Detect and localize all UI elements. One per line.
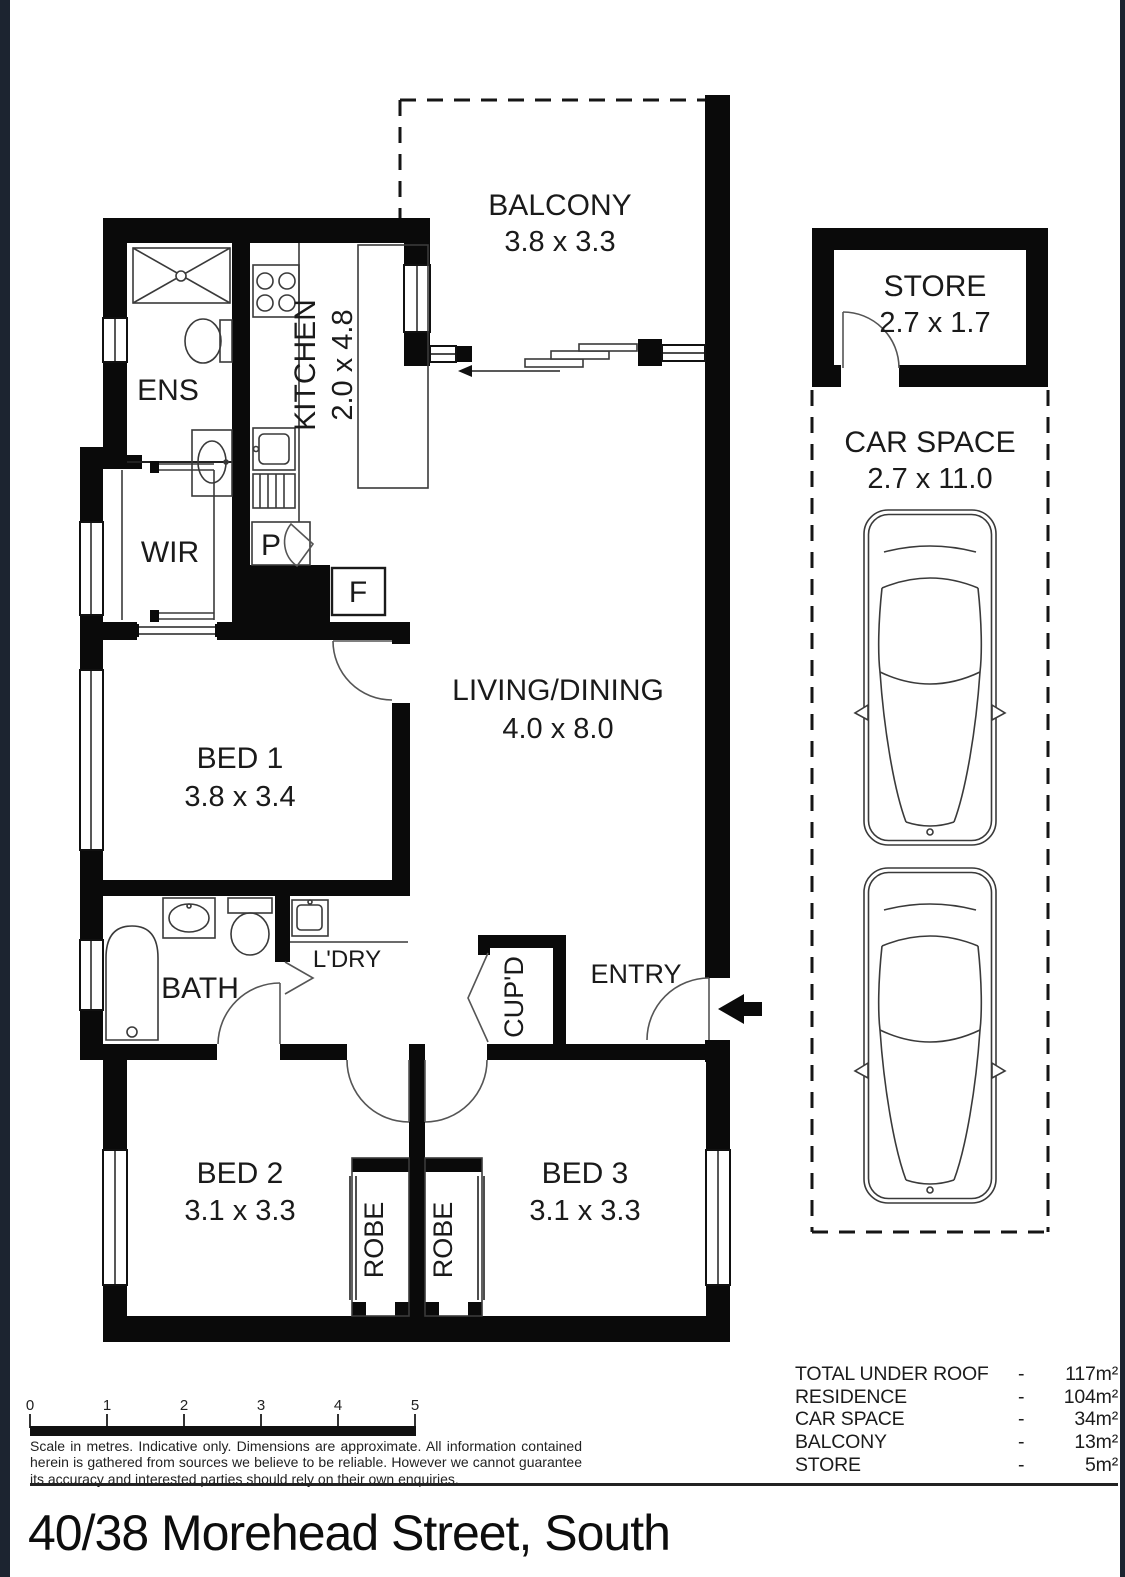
room-bed1: BED 1 3.8 x 3.4 (133, 624, 392, 813)
kitchen-drawers-fixture (253, 474, 295, 508)
door-arc-bed2 (347, 1060, 409, 1122)
wall (103, 1316, 730, 1342)
room-dims-store: 2.7 x 1.7 (879, 307, 990, 339)
wall (80, 1044, 217, 1060)
door-arc-pantry (285, 524, 313, 566)
room-label-bath: BATH (161, 972, 239, 1005)
car-top-view (855, 510, 1005, 845)
room-label-robe-left: ROBE (359, 1202, 389, 1279)
window (80, 940, 103, 1010)
room-balcony: BALCONY 3.8 x 3.3 (400, 100, 705, 377)
wall (80, 896, 103, 940)
area-label: RESIDENCE (795, 1386, 1018, 1409)
disclaimer-text: Scale in metres. Indicative only. Dimens… (30, 1438, 582, 1487)
scale-bar-rule (30, 1426, 416, 1436)
area-separator: - (1018, 1431, 1052, 1454)
area-separator: - (1018, 1454, 1052, 1477)
area-value: 5m² (1052, 1454, 1118, 1477)
scale-tick-label: 2 (180, 1397, 188, 1414)
scale-tick-label: 1 (103, 1397, 111, 1414)
wall (395, 1302, 409, 1316)
room-label-balcony: BALCONY (488, 189, 631, 222)
wall (456, 346, 472, 362)
sliding-door (458, 344, 637, 377)
page-title: 40/38 Morehead Street, South (28, 1504, 1088, 1562)
wall (404, 243, 430, 265)
scale-tick-label: 4 (334, 1397, 342, 1414)
entry: ENTRY (590, 959, 762, 1040)
area-row: TOTAL UNDER ROOF - 117m² (795, 1363, 1118, 1386)
wall (80, 880, 410, 896)
room-dims-living: 4.0 x 8.0 (502, 713, 613, 745)
floor-plan: BALCONY 3.8 x 3.3 (0, 0, 1125, 1577)
area-label: STORE (795, 1454, 1018, 1477)
room-label-ens: ENS (137, 374, 199, 407)
area-row: BALCONY - 13m² (795, 1431, 1118, 1454)
room-label-kitchen: KITCHEN (289, 299, 322, 431)
car-top-view (855, 868, 1005, 1203)
area-separator: - (1018, 1363, 1052, 1386)
laundry-bifold-door (285, 962, 313, 994)
room-dims-bed2: 3.1 x 3.3 (184, 1195, 295, 1227)
room-bath: BATH (106, 898, 280, 1044)
car-space: CAR SPACE 2.7 x 11.0 (812, 390, 1048, 1232)
area-label: CAR SPACE (795, 1408, 1018, 1431)
shower-fixture (133, 248, 230, 303)
laundry-sink-fixture (292, 900, 328, 936)
window (103, 1150, 127, 1285)
wall (553, 935, 566, 1060)
room-ens: ENS (133, 248, 232, 496)
slide-arrow-icon (458, 365, 472, 377)
area-table: TOTAL UNDER ROOF - 117m² RESIDENCE - 104… (795, 1363, 1118, 1477)
fridge: F (332, 568, 385, 615)
room-dims-bed3: 3.1 x 3.3 (529, 1195, 640, 1227)
room-kitchen: KITCHEN 2.0 x 4.8 (253, 243, 428, 522)
robe-left: ROBE (350, 1158, 409, 1316)
toilet-fixture (185, 319, 232, 363)
robe-right: ROBE (425, 1158, 484, 1316)
wall (280, 1044, 347, 1060)
wall (478, 935, 566, 948)
window (706, 1150, 730, 1285)
wall (103, 1285, 127, 1316)
area-separator: - (1018, 1408, 1052, 1431)
wall (232, 243, 250, 625)
window (430, 346, 456, 362)
room-label-bed3: BED 3 (542, 1157, 629, 1190)
wall (250, 565, 330, 625)
area-value: 104m² (1052, 1386, 1118, 1409)
wall (425, 1302, 439, 1316)
area-row: STORE - 5m² (795, 1454, 1118, 1477)
window (80, 670, 103, 850)
wall (103, 362, 127, 457)
wall (638, 339, 662, 366)
wall (352, 1302, 366, 1316)
kitchen-sink-fixture (253, 428, 295, 470)
entry-arrow-icon (718, 994, 762, 1024)
wall (706, 1285, 730, 1316)
area-value: 13m² (1052, 1431, 1118, 1454)
area-label: TOTAL UNDER ROOF (795, 1363, 1018, 1386)
wall (103, 1060, 127, 1150)
wall (275, 896, 290, 962)
wall (478, 935, 490, 955)
wall (80, 622, 137, 640)
area-label: BALCONY (795, 1431, 1018, 1454)
wall (468, 1302, 482, 1316)
scale-ticks (30, 1414, 415, 1428)
window (103, 318, 127, 362)
scale-tick-label: 0 (26, 1397, 34, 1414)
area-value: 117m² (1052, 1363, 1118, 1386)
bathtub-fixture (106, 926, 158, 1040)
wall (103, 218, 430, 243)
scale-tick-label: 3 (257, 1397, 265, 1414)
wall (487, 1044, 730, 1060)
wall (217, 622, 392, 640)
room-dims-carspace: 2.7 x 11.0 (867, 463, 992, 495)
room-label-store: STORE (884, 270, 987, 303)
room-label-robe-right: ROBE (428, 1202, 458, 1279)
wall (103, 243, 127, 318)
room-label-fridge: F (349, 576, 367, 609)
wall (705, 95, 730, 978)
room-label-bed2: BED 2 (197, 1157, 284, 1190)
area-row: CAR SPACE - 34m² (795, 1408, 1118, 1431)
room-store: STORE 2.7 x 1.7 (812, 228, 1048, 389)
window (662, 345, 705, 361)
wall (425, 1158, 482, 1172)
wall (409, 1060, 425, 1316)
door-arc-bed1 (333, 641, 392, 700)
room-label-carspace: CAR SPACE (844, 426, 1015, 459)
area-value: 34m² (1052, 1408, 1118, 1431)
room-cupboard: CUP'D (468, 953, 529, 1042)
window (404, 265, 430, 332)
wir-sliding-door (133, 624, 221, 637)
room-label-cupboard: CUP'D (499, 956, 529, 1038)
door-arc-bed3 (425, 1060, 487, 1122)
area-separator: - (1018, 1386, 1052, 1409)
room-label-wir: WIR (141, 536, 199, 569)
room-label-bed1: BED 1 (197, 742, 284, 775)
room-label-laundry: L'DRY (313, 946, 381, 973)
area-row: RESIDENCE - 104m² (795, 1386, 1118, 1409)
store-door-gap (841, 360, 899, 389)
room-living-dining: LIVING/DINING 4.0 x 8.0 (452, 674, 664, 745)
room-dims-balcony: 3.8 x 3.3 (504, 226, 615, 258)
basin-fixture (163, 898, 215, 938)
wall (404, 332, 430, 366)
wall (392, 703, 410, 894)
room-laundry: L'DRY (285, 900, 408, 994)
window (80, 522, 103, 615)
wall (409, 1044, 425, 1060)
pantry: P (252, 522, 313, 566)
wall (392, 622, 410, 644)
wall (352, 1158, 409, 1172)
cupboard-bifold-door (468, 953, 488, 1042)
scale-tick-label: 5 (411, 1397, 419, 1414)
room-wir: WIR (122, 461, 214, 622)
scale-bar: 0 1 2 3 4 5 (26, 1397, 419, 1436)
room-dims-kitchen: 2.0 x 4.8 (327, 309, 359, 420)
room-label-entry: ENTRY (590, 959, 681, 989)
room-label-living: LIVING/DINING (452, 674, 664, 707)
room-label-pantry: P (261, 529, 281, 562)
wall (706, 1062, 730, 1150)
footer-divider (30, 1483, 1118, 1486)
toilet-fixture (228, 898, 272, 955)
room-dims-bed1: 3.8 x 3.4 (184, 781, 295, 813)
